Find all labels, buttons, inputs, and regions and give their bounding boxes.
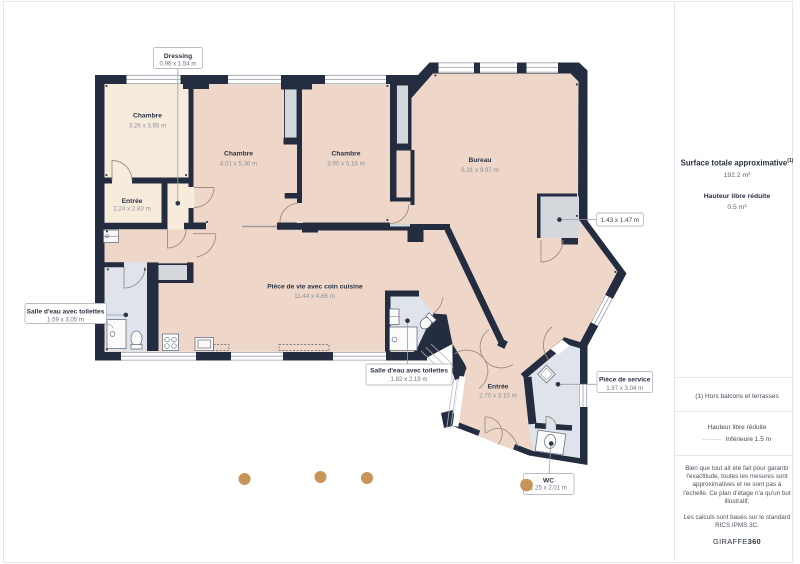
svg-text:1.59 x 3.05 m: 1.59 x 3.05 m [47, 317, 84, 324]
svg-text:4.01 x 5.36 m: 4.01 x 5.36 m [220, 161, 258, 168]
svg-text:2.24 x 2.83 m: 2.24 x 2.83 m [113, 206, 151, 213]
svg-text:2.70 x 3.10 m: 2.70 x 3.10 m [479, 393, 517, 400]
svg-text:1.25 x 2.01 m: 1.25 x 2.01 m [530, 485, 567, 492]
svg-text:Chambre: Chambre [224, 151, 253, 158]
svg-text:3.26 x 3.65 m: 3.26 x 3.65 m [129, 123, 167, 130]
svg-text:Chambre: Chambre [133, 113, 162, 120]
svg-text:Dressing: Dressing [164, 53, 192, 60]
svg-text:1.43 x 1.47 m: 1.43 x 1.47 m [601, 217, 639, 224]
svg-text:Salle d'eau avec toilettes: Salle d'eau avec toilettes [27, 309, 105, 316]
svg-text:3.90 x 5.18 m: 3.90 x 5.18 m [327, 161, 365, 168]
svg-text:1.97 x 3.04 m: 1.97 x 3.04 m [606, 385, 643, 392]
svg-text:WC: WC [543, 478, 554, 485]
svg-text:1.82 x 2.19 m: 1.82 x 2.19 m [391, 376, 428, 383]
svg-text:0.96 x 1.54 m: 0.96 x 1.54 m [160, 61, 197, 68]
svg-text:Entrée: Entrée [122, 198, 143, 205]
svg-text:Pièce de vie avec coin cuisine: Pièce de vie avec coin cuisine [267, 284, 363, 291]
svg-text:11.44 x 4.66 m: 11.44 x 4.66 m [294, 293, 334, 300]
svg-text:Bureau: Bureau [468, 157, 491, 164]
svg-text:Chambre: Chambre [332, 151, 361, 158]
svg-text:Salle d'eau avec toilettes: Salle d'eau avec toilettes [370, 368, 448, 375]
svg-text:6.31 x 9.97 m: 6.31 x 9.97 m [461, 167, 499, 174]
svg-text:Pièce de service: Pièce de service [599, 377, 651, 384]
svg-text:Entrée: Entrée [488, 384, 509, 391]
